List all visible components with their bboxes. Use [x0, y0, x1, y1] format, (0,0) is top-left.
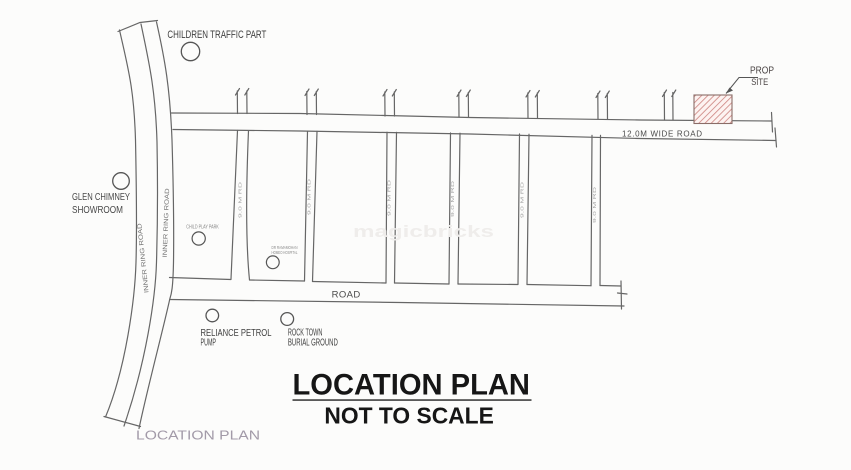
svg-text:ROAD: ROAD [332, 290, 361, 301]
svg-text:GLEN CHIMNEY: GLEN CHIMNEY [72, 192, 130, 203]
svg-text:9.0 M RD: 9.0 M RD [592, 186, 597, 223]
svg-text:PUMP: PUMP [201, 337, 217, 348]
svg-text:HOMEO HOSPITAL: HOMEO HOSPITAL [272, 250, 298, 255]
svg-text:magicbricks: magicbricks [353, 222, 494, 241]
svg-text:9.0 M RD: 9.0 M RD [387, 179, 392, 216]
svg-text:SHOWROOM: SHOWROOM [72, 205, 123, 216]
svg-text:9.0 M RD: 9.0 M RD [238, 181, 243, 218]
svg-text:NOT TO SCALE: NOT TO SCALE [324, 403, 493, 429]
svg-text:SITE: SITE [751, 77, 768, 88]
svg-text:BURIAL GROUND: BURIAL GROUND [288, 337, 338, 348]
svg-text:12.0M WIDE ROAD: 12.0M WIDE ROAD [622, 130, 702, 139]
svg-text:LOCATION PLAN: LOCATION PLAN [136, 428, 260, 443]
svg-text:CHILDREN TRAFFIC PART: CHILDREN TRAFFIC PART [167, 29, 266, 41]
svg-text:9.0 M RD: 9.0 M RD [450, 180, 455, 217]
svg-text:9.0 M RD: 9.0 M RD [520, 181, 525, 218]
svg-text:PROP: PROP [750, 65, 774, 76]
svg-text:9.0 M RD: 9.0 M RD [307, 178, 312, 215]
svg-text:LOCATION PLAN: LOCATION PLAN [293, 369, 531, 402]
svg-text:CHILD PLAY PARK: CHILD PLAY PARK [186, 224, 219, 230]
